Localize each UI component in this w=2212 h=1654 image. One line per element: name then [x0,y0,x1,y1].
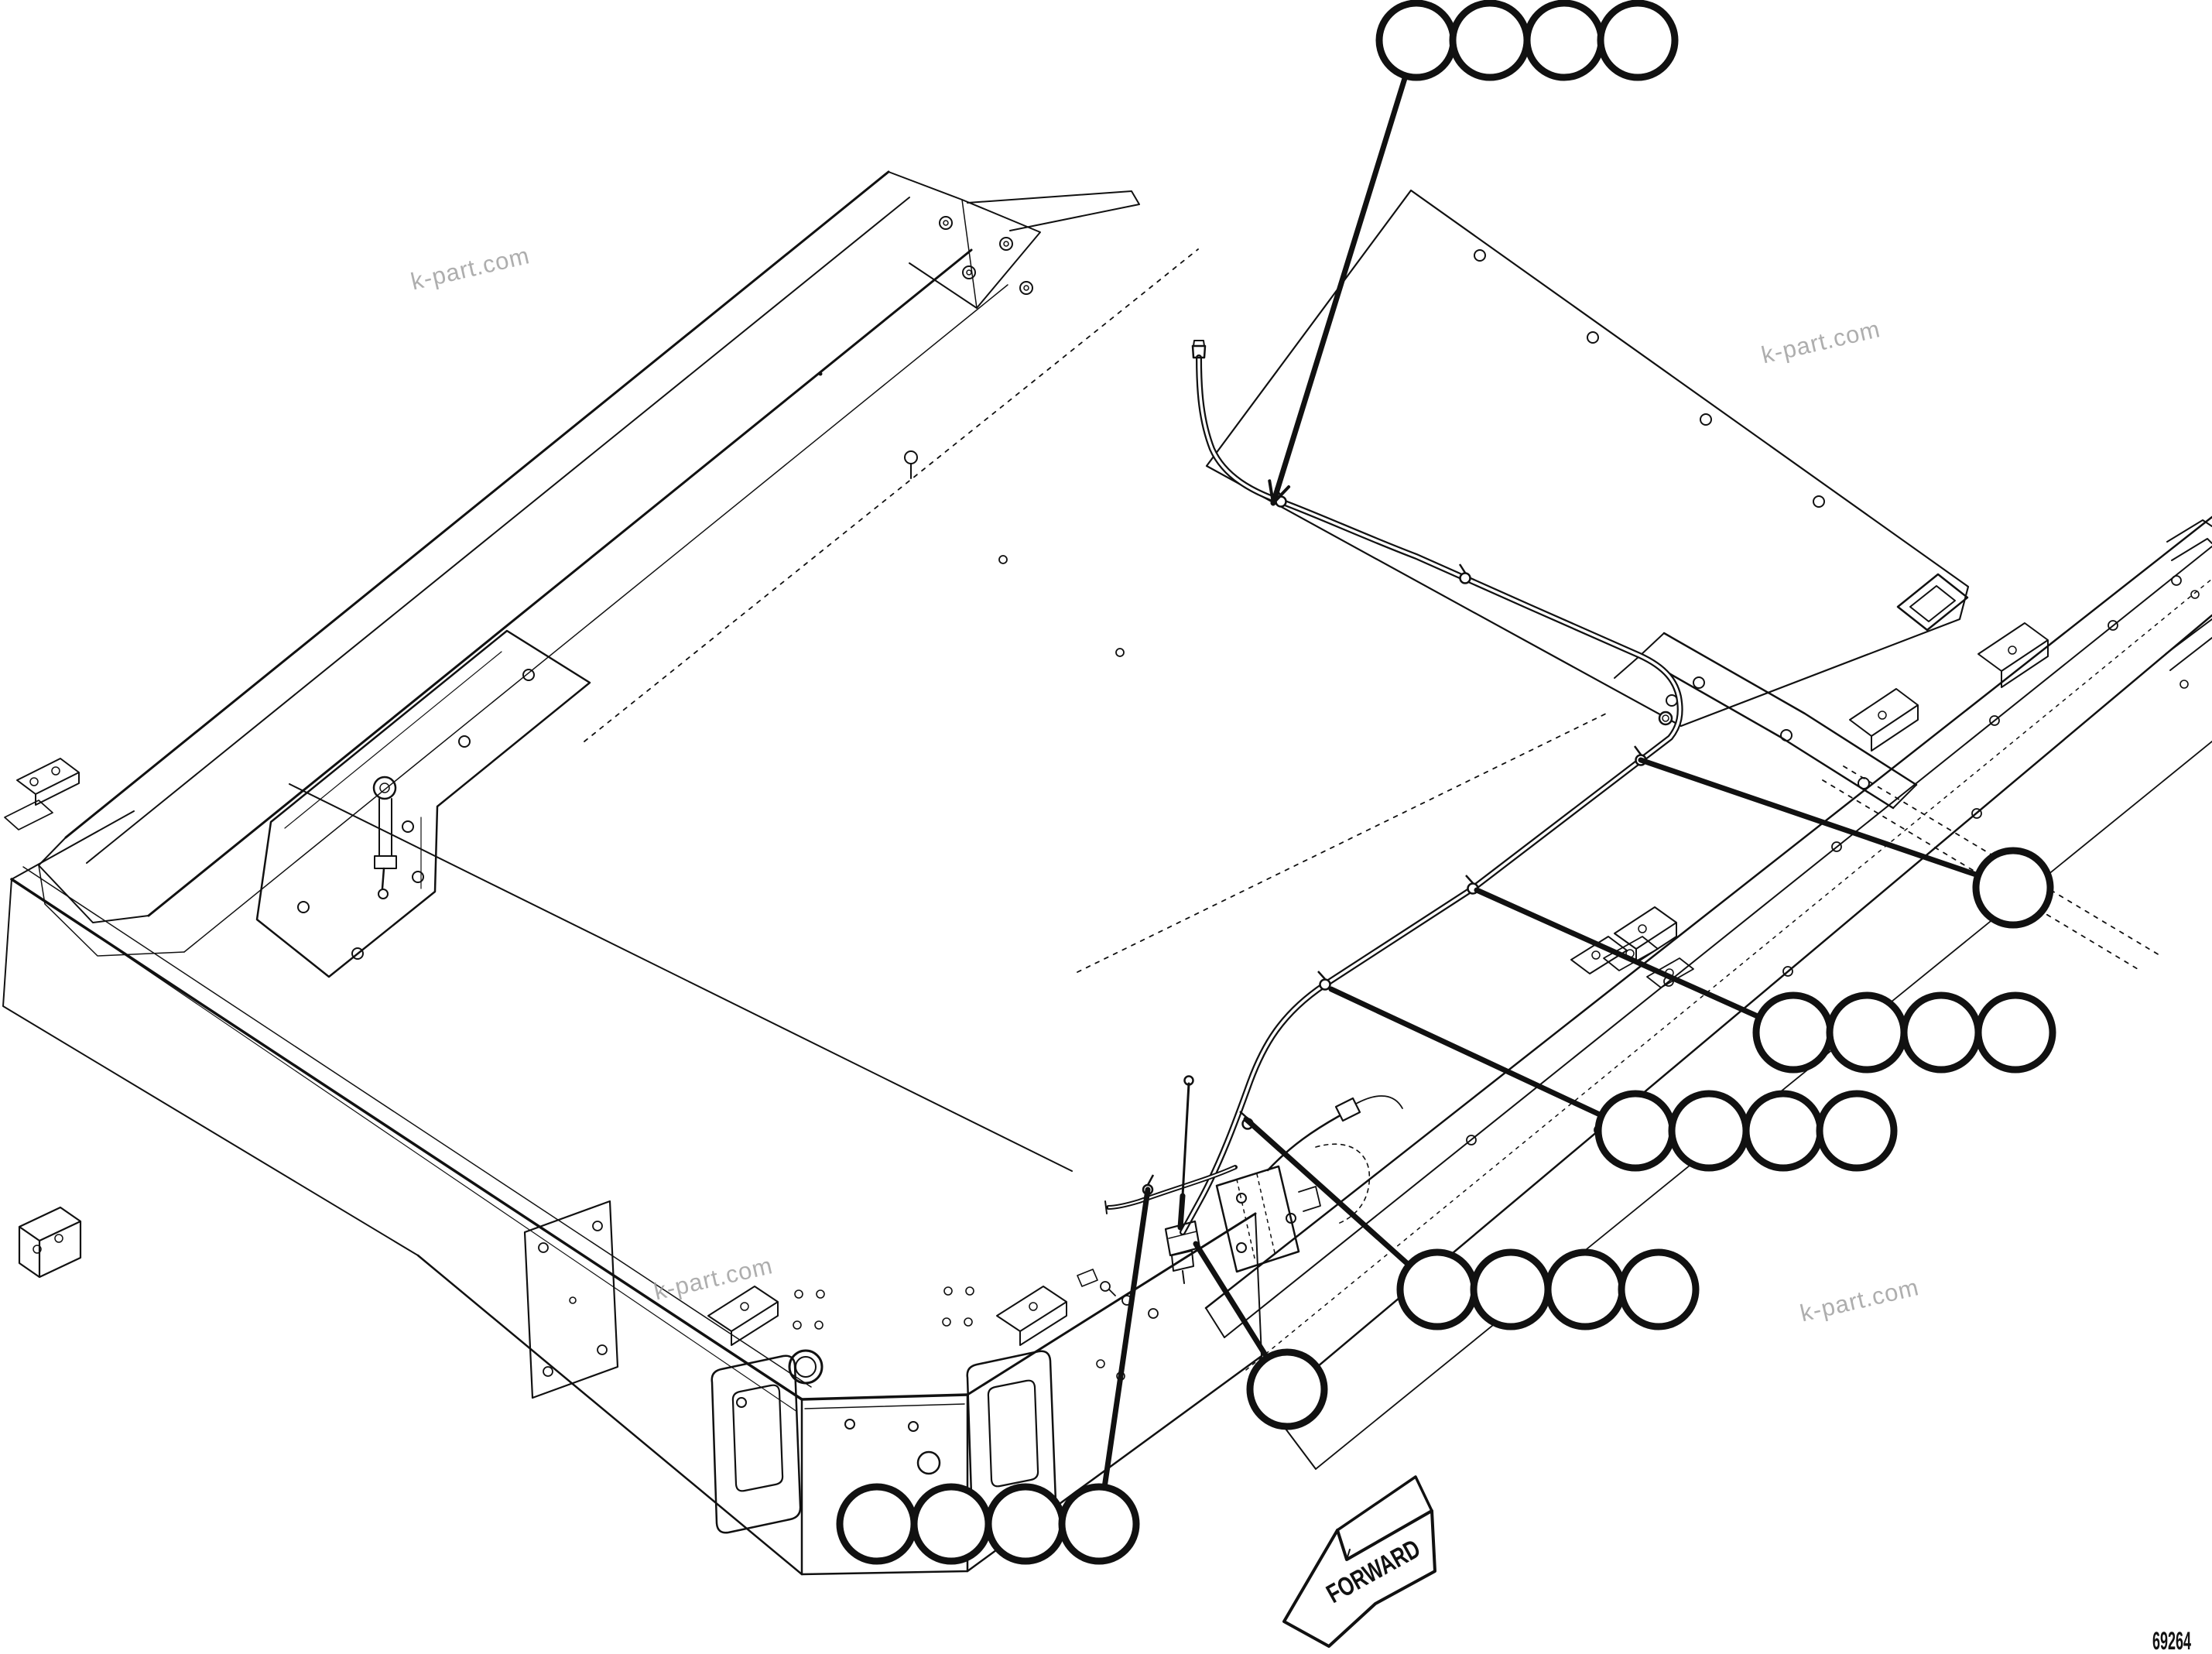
callout-balloon-row2-2 [1830,995,1904,1070]
watermark: k-part.com [1797,1273,1921,1327]
watermark: k-part.com [408,241,532,295]
callout-balloon-top-1 [1379,3,1454,77]
watermark: k-part.com [651,1252,775,1305]
callout-balloon-row5-3 [988,1487,1063,1561]
deck-inner-edge [289,784,1072,1171]
bolt-holes [793,1287,974,1329]
watermark: k-part.com [1758,315,1882,368]
access-plate [525,1201,618,1398]
callout-balloon-row4-4 [1621,1252,1696,1327]
callout-balloon-bottom-single [1250,1352,1324,1426]
hidden-edge-lines [584,249,2159,972]
callout-balloon-row5-1 [840,1487,914,1561]
leader-line [1196,1244,1267,1358]
deck-opening-plate [257,631,590,977]
callout-balloon-top-3 [1527,3,1601,77]
leader-line [1331,989,1601,1115]
callout-balloon-row5-4 [1062,1487,1136,1561]
callout-balloon-top-2 [1453,3,1527,77]
forward-arrow-icon: FORWARD [1284,1477,1435,1646]
drawing-number: 69264 [2152,1627,2191,1654]
callout-balloon-row3-2 [1672,1094,1746,1168]
callout-balloon-row2-4 [1978,995,2053,1070]
leader-line [1477,890,1759,1017]
leader-line [1246,1119,1409,1265]
wire-connector-icon [1336,1098,1360,1121]
rear-cover-panel [1207,190,1968,988]
callout-balloon-row2-1 [1756,995,1830,1070]
callout-balloon-row4-3 [1548,1252,1622,1327]
screw-icon [1116,649,1124,656]
door-recess [712,1356,800,1533]
leader-line [1641,760,1978,875]
callout-balloon-top-4 [1601,3,1675,77]
roof-beam-assembly [39,172,1139,956]
callout-balloon-row3-3 [1746,1094,1820,1168]
screw-icon [999,556,1007,563]
callout-balloon-row5-2 [914,1487,988,1561]
callout-balloon-row4-2 [1474,1252,1548,1327]
callout-balloon-row3-4 [1820,1094,1894,1168]
callout-balloon-right-single [1976,851,2050,925]
ball-stud-fitting [374,777,396,899]
module-wire [1268,1116,1339,1170]
callout-balloon-row3-1 [1598,1094,1673,1168]
callout-balloon-row4-1 [1400,1252,1474,1327]
leader-line [1273,76,1406,503]
harness-clip-icon [1143,488,1672,1194]
callout-balloon-row2-3 [1904,995,1978,1070]
parts-diagram-page: k-part.com k-part.com k-part.com k-part.… [0,0,2212,1654]
rail-handle-bracket [1898,574,1967,630]
